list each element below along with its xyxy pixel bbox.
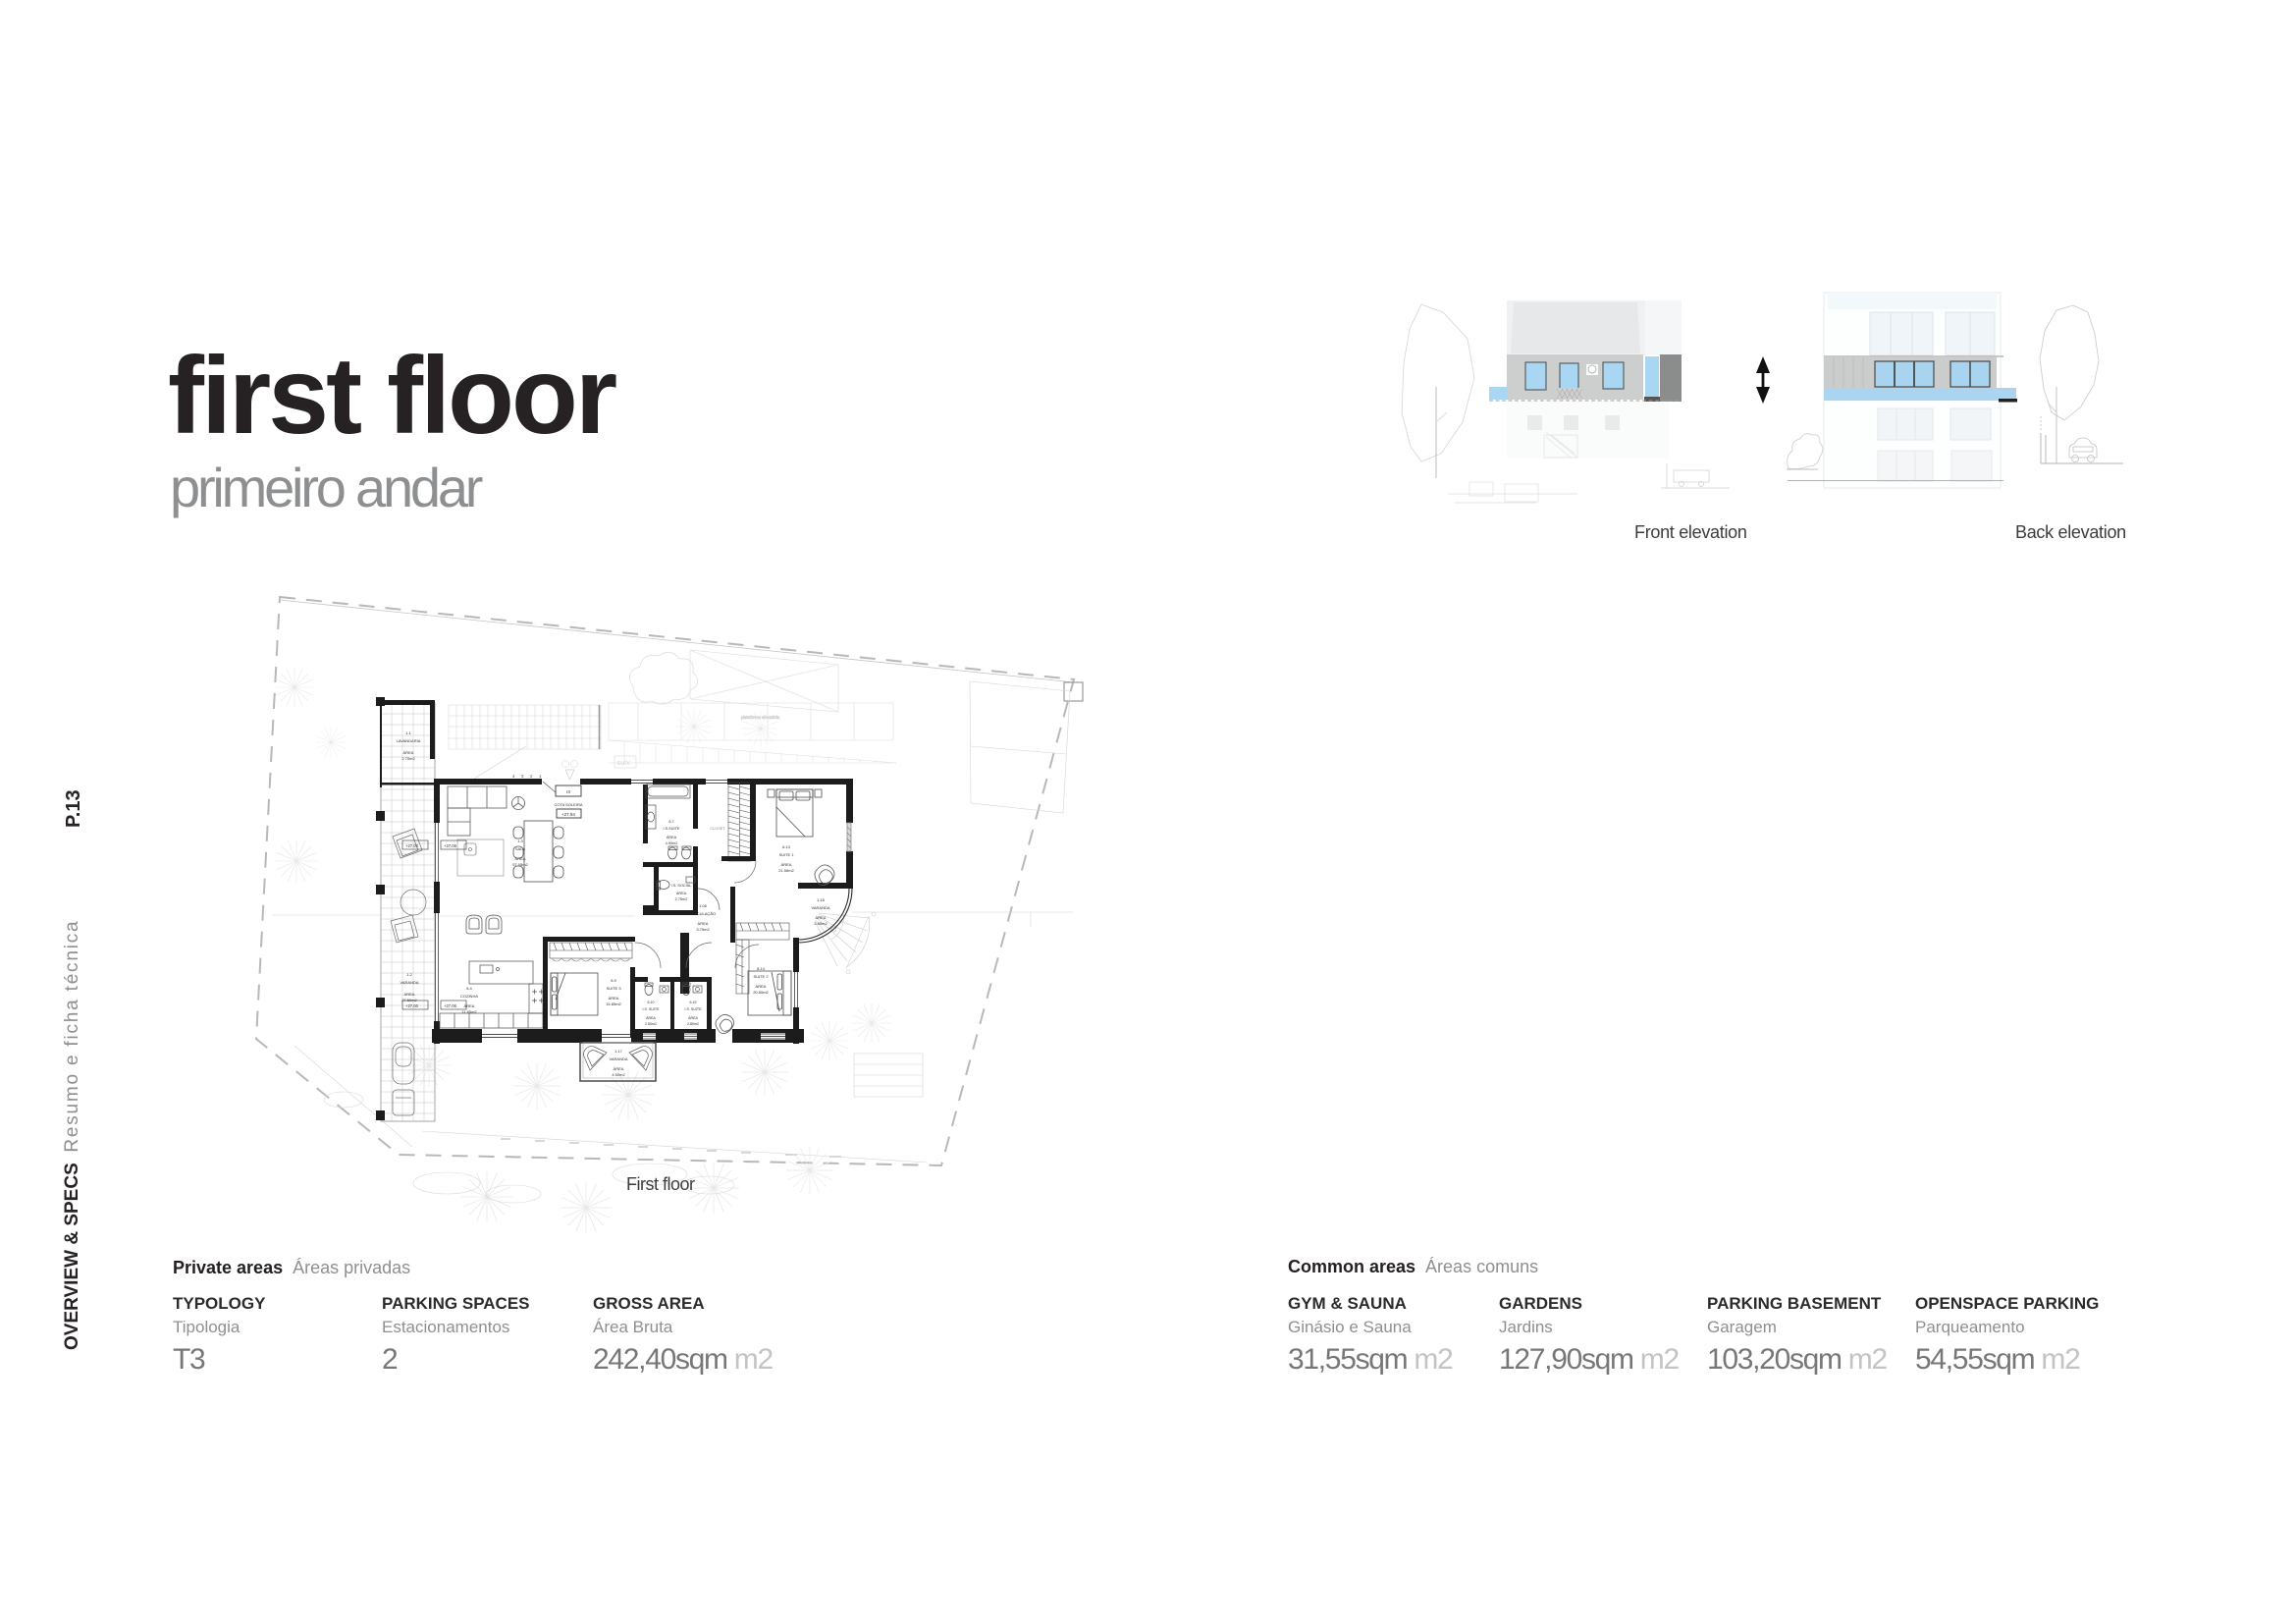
- svg-text:ÁREA: ÁREA: [676, 892, 687, 895]
- svg-text:ÁREA: ÁREA: [781, 862, 792, 867]
- svg-text:ÁREA: ÁREA: [688, 1016, 698, 1020]
- svg-text:6.10: 6.10: [648, 1001, 655, 1004]
- svg-text:1.1: 1.1: [405, 731, 411, 735]
- svg-text:VARANDA: VARANDA: [400, 980, 418, 985]
- svg-text:ÁREA: ÁREA: [698, 921, 709, 926]
- svg-text:4.50m2: 4.50m2: [612, 1072, 625, 1077]
- svg-text:I.S.SUITE: I.S.SUITE: [664, 827, 680, 831]
- svg-text:1.06: 1.06: [699, 903, 708, 908]
- svg-text:ELEV: ELEV: [617, 761, 630, 767]
- svg-text:ÁREA: ÁREA: [646, 1016, 656, 1020]
- svg-text:21.56m2: 21.56m2: [778, 868, 794, 873]
- svg-text:CLOSET: CLOSET: [710, 827, 725, 831]
- svg-text:+27.94: +27.94: [561, 812, 575, 817]
- svg-text:+27.06: +27.06: [444, 843, 457, 848]
- svg-text:ÁREA: ÁREA: [403, 750, 414, 755]
- svg-text:SUITE 2: SUITE 2: [753, 974, 769, 979]
- svg-text:I.S. SUITE: I.S. SUITE: [643, 1007, 661, 1011]
- svg-text:SUITE 1: SUITE 1: [778, 852, 794, 857]
- svg-text:ÁREA: ÁREA: [816, 915, 827, 920]
- svg-text:ÁREA: ÁREA: [667, 836, 677, 839]
- svg-text:VARANDA: VARANDA: [609, 1056, 627, 1061]
- svg-text:27.50m2: 27.50m2: [401, 998, 417, 1002]
- svg-text:1.17: 1.17: [614, 1049, 623, 1054]
- svg-text:1: 1: [539, 774, 542, 779]
- svg-text:LAVANDARIA: LAVANDARIA: [397, 738, 421, 743]
- svg-text:8.14: 8.14: [757, 966, 766, 971]
- svg-text:ÁREA: ÁREA: [614, 1066, 624, 1071]
- svg-text:2.70m2: 2.70m2: [401, 756, 415, 761]
- svg-text:15.85m2: 15.85m2: [606, 1001, 621, 1006]
- svg-text:1.2: 1.2: [406, 972, 412, 977]
- svg-text:11.65m2: 11.65m2: [461, 1009, 477, 1014]
- svg-text:6.7: 6.7: [668, 820, 673, 824]
- svg-text:2: 2: [530, 774, 533, 779]
- svg-text:1.3: 1.3: [517, 839, 523, 843]
- svg-text:COTA SOLEIRA: COTA SOLEIRA: [554, 802, 582, 807]
- svg-text:2.80m2: 2.80m2: [645, 1022, 657, 1026]
- svg-text:ÁREA: ÁREA: [404, 992, 415, 997]
- svg-text:ÁREA: ÁREA: [464, 1003, 475, 1008]
- svg-text:20.50m2: 20.50m2: [753, 990, 769, 995]
- svg-text:4: 4: [512, 774, 515, 779]
- svg-text:2.80m2: 2.80m2: [687, 1022, 699, 1026]
- svg-text:4.90m2: 4.90m2: [666, 841, 678, 845]
- svg-text:+27.06: +27.06: [444, 1003, 457, 1008]
- svg-text:+27.00: +27.00: [405, 843, 419, 848]
- svg-text:VARANDA: VARANDA: [811, 905, 829, 910]
- svg-text:6.4: 6.4: [466, 986, 472, 991]
- svg-text:I.S. SUITE: I.S. SUITE: [685, 1007, 703, 1011]
- svg-text:+27.00: +27.00: [405, 1003, 419, 1008]
- svg-text:ÁREA: ÁREA: [609, 996, 619, 1001]
- svg-text:I3: I3: [566, 789, 570, 794]
- svg-text:3.75m2: 3.75m2: [696, 927, 710, 932]
- svg-text:2.75m2: 2.75m2: [675, 897, 688, 901]
- svg-text:COZINHA: COZINHA: [460, 994, 478, 999]
- svg-text:6.15: 6.15: [690, 1001, 697, 1004]
- svg-text:I.S. SOCIAL: I.S. SOCIAL: [671, 884, 692, 888]
- svg-text:ÁREA: ÁREA: [756, 984, 767, 989]
- svg-text:6.13: 6.13: [782, 844, 791, 849]
- svg-text:3: 3: [521, 774, 524, 779]
- svg-text:8.9: 8.9: [611, 978, 616, 983]
- svg-text:1.16: 1.16: [817, 897, 826, 902]
- svg-text:SUITE 3: SUITE 3: [606, 986, 621, 991]
- svg-text:2.85m2: 2.85m2: [814, 921, 828, 926]
